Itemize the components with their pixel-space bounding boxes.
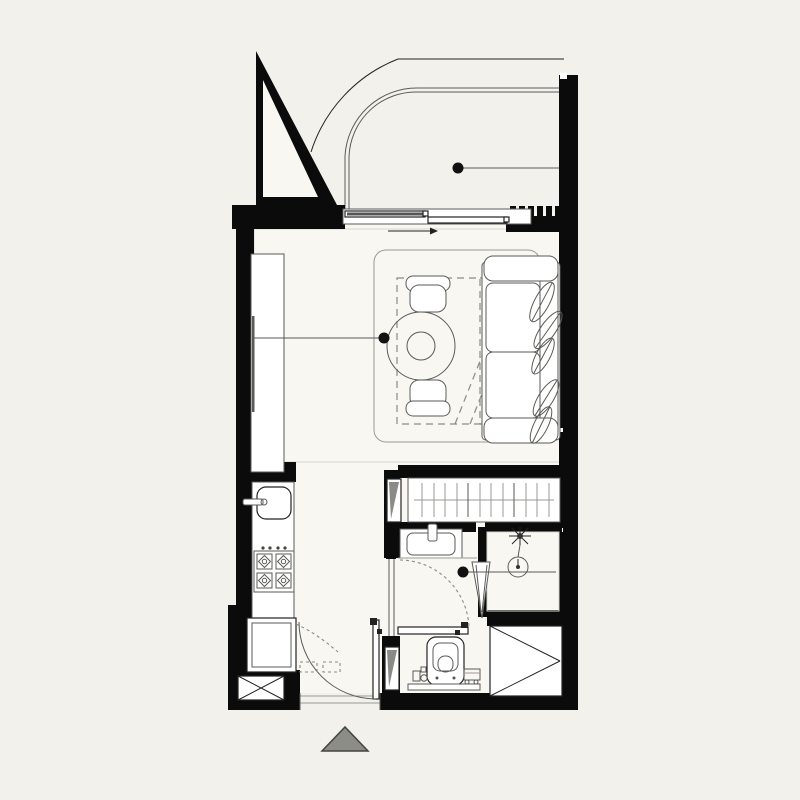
faucet-icon [243,499,263,505]
sofa-armrest [484,256,558,281]
dining-chair-icon [406,276,450,312]
cabinet-handle [252,316,255,412]
toilet-shelf [408,684,480,690]
shaft-x-icon [238,676,284,700]
wall-shaft-top [487,617,564,626]
pocket-door-icon [387,479,401,522]
annotation-dot-icon [379,333,390,344]
floor-plan-canvas [0,0,800,800]
wardrobe-cabinet-icon [251,254,284,472]
wall-above-closet [398,465,563,478]
wall-joint-notch [560,73,567,79]
dining-chair-icon [406,380,450,416]
pocket-door-icon [385,647,399,690]
closet [408,478,560,522]
annotation-dot-icon [453,163,464,174]
annotation-dot-icon [458,567,469,578]
toilet-icon [427,637,464,685]
washing-machine-icon [247,618,296,672]
wall-segment [232,205,345,229]
air-shaft-triangle-icon [490,626,562,696]
door-hinge-icon [370,618,377,625]
door-hinge-icon [377,629,382,634]
floor-plan-svg [0,0,800,800]
door-handle-icon [455,630,460,635]
door-handle-icon [461,622,468,628]
sofa-armrest [484,418,558,443]
sofa-icon [482,256,567,446]
basin-tap-icon [428,524,437,541]
